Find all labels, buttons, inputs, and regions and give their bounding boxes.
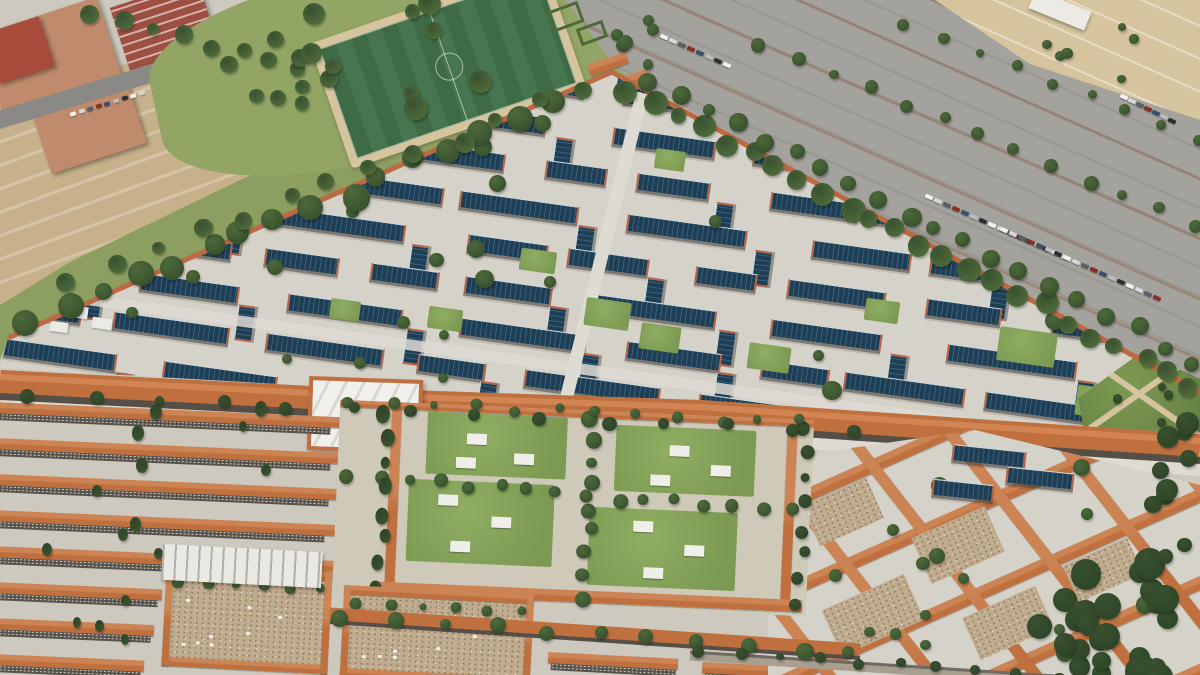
- tomb: [361, 655, 365, 658]
- tomb: [209, 635, 213, 638]
- tree: [388, 397, 400, 409]
- tree: [121, 634, 129, 645]
- tree: [574, 591, 591, 608]
- tree: [380, 456, 390, 468]
- grave-plot: [633, 521, 653, 533]
- tree: [668, 493, 680, 505]
- tree: [585, 432, 602, 449]
- tree: [470, 398, 482, 410]
- tomb: [209, 643, 213, 646]
- tomb: [377, 655, 381, 658]
- tree: [497, 479, 509, 491]
- tree: [549, 486, 561, 498]
- tree: [118, 528, 128, 541]
- tomb: [247, 606, 251, 609]
- garden-courtyards-inner: [332, 400, 814, 616]
- aerial-photo-cemetery-solar: [0, 0, 1200, 675]
- tree: [371, 554, 384, 571]
- lawn: [614, 425, 757, 497]
- lawn: [425, 412, 568, 480]
- grave-plot: [711, 465, 731, 477]
- tomb: [182, 643, 186, 646]
- tree: [405, 475, 415, 485]
- tomb: [436, 647, 440, 650]
- tree: [376, 405, 391, 424]
- lawn: [406, 479, 555, 567]
- grave-plot: [669, 445, 689, 457]
- tomb: [393, 656, 397, 659]
- tree: [95, 620, 104, 632]
- tomb: [365, 619, 369, 622]
- tree: [724, 499, 738, 513]
- tomb: [393, 650, 397, 653]
- tree: [132, 425, 144, 441]
- lawn: [587, 507, 738, 591]
- tree: [717, 416, 730, 429]
- tree: [136, 458, 147, 473]
- tree: [794, 414, 804, 424]
- tomb: [437, 625, 441, 628]
- tree: [589, 405, 600, 416]
- niche-row: [0, 438, 342, 472]
- niche-row: [0, 402, 342, 436]
- tree: [339, 469, 354, 484]
- grave-plot: [450, 541, 470, 553]
- tree: [757, 502, 772, 517]
- niche-row: [0, 474, 340, 508]
- tree: [73, 617, 81, 628]
- tomb: [196, 642, 200, 645]
- grave-plot: [650, 474, 670, 486]
- tomb: [186, 599, 190, 602]
- grave-plot: [643, 567, 663, 579]
- grave-plot: [438, 494, 458, 506]
- grave-plot: [491, 516, 511, 528]
- tree: [790, 572, 803, 585]
- tree: [697, 499, 711, 513]
- tree: [795, 525, 809, 539]
- tree: [42, 543, 52, 556]
- tree: [239, 421, 248, 432]
- niche-row: [0, 510, 336, 544]
- tree: [798, 494, 812, 508]
- tomb: [473, 635, 477, 638]
- tree: [800, 473, 810, 483]
- graves-court: [340, 585, 535, 675]
- tomb: [246, 632, 250, 635]
- tree: [579, 489, 593, 503]
- niche-row: [0, 582, 162, 608]
- grave-plot: [467, 433, 487, 445]
- tree: [92, 485, 101, 497]
- tree: [638, 494, 649, 505]
- niche-row: [0, 654, 144, 675]
- tree: [630, 409, 640, 419]
- tree: [613, 494, 629, 510]
- tree: [150, 404, 162, 419]
- tree: [121, 595, 129, 606]
- grave-plot: [456, 457, 476, 469]
- tree: [261, 464, 270, 476]
- grave-plot: [684, 545, 704, 557]
- grave-plot: [514, 453, 534, 465]
- tree: [586, 457, 597, 468]
- tomb: [278, 616, 282, 619]
- tree: [584, 521, 598, 535]
- tree: [786, 503, 799, 516]
- tree: [434, 473, 448, 487]
- tree: [671, 411, 683, 423]
